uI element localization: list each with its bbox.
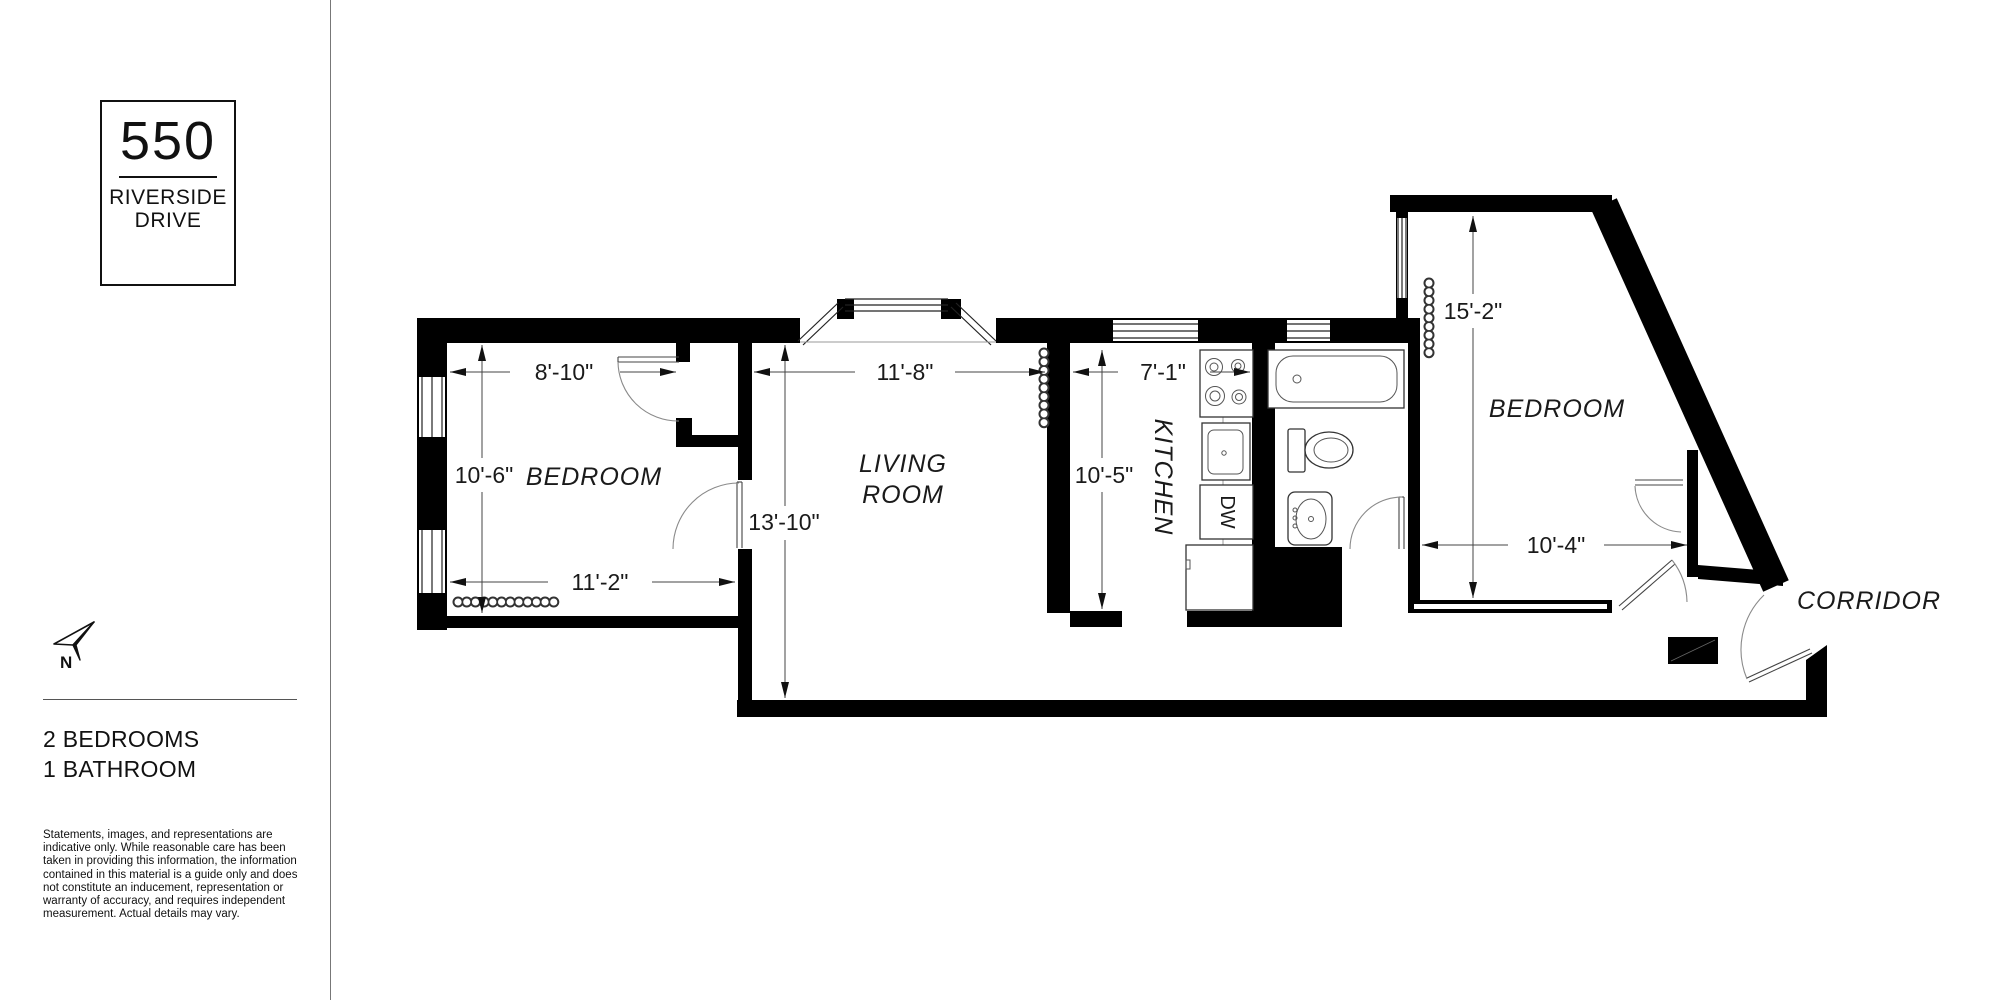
dimension-label: 11'-2" [572, 569, 629, 595]
kitchen-fixtures: DW [1186, 350, 1253, 610]
street-name-line2: DRIVE [102, 209, 234, 232]
dimension: 11'-2" [450, 569, 735, 595]
window [1397, 218, 1407, 298]
bay-window [798, 299, 996, 345]
bathroom-sink [1288, 492, 1332, 545]
bathroom-fixtures [1268, 350, 1404, 545]
dimension-label: 10'-5" [1075, 462, 1134, 488]
room-label-bedroom1: BEDROOM [526, 463, 662, 491]
stove [1200, 350, 1253, 417]
address-logo: 550 RIVERSIDE DRIVE [100, 100, 236, 286]
window [419, 377, 445, 437]
dishwasher-label: DW [1216, 495, 1238, 528]
floor-plan: DW [380, 130, 1960, 770]
dimension: 10'-5" [1075, 350, 1134, 609]
dimension-label: 10'-4" [1527, 532, 1586, 558]
dimension: 8'-10" [450, 359, 676, 385]
toilet [1288, 429, 1353, 472]
window [419, 530, 445, 593]
building-number: 550 [102, 112, 234, 170]
dimension: 10'-6" [455, 345, 514, 613]
dishwasher: DW [1200, 485, 1253, 539]
room-label-living-line1: LIVING [859, 450, 947, 478]
room-label-living-line2: ROOM [862, 481, 944, 509]
room-label-kitchen: KITCHEN [1149, 419, 1177, 536]
bathtub [1268, 350, 1404, 408]
dimension-label: 7'-1" [1140, 359, 1186, 385]
door-bedroom1 [673, 482, 742, 549]
dimension: 13'-10" [748, 345, 819, 698]
walls [417, 195, 1827, 717]
bathroom-count: 1 BATHROOM [43, 754, 199, 784]
window [1287, 320, 1330, 341]
panel-rule [43, 699, 297, 700]
bedroom-count: 2 BEDROOMS [43, 724, 199, 754]
dimension-label: 13'-10" [748, 509, 819, 535]
door-bathroom [1350, 497, 1404, 549]
dimension: 10'-4" [1422, 532, 1687, 558]
room-label-bedroom2: BEDROOM [1489, 395, 1625, 423]
panel-divider [330, 0, 331, 1000]
dimension: 11'-8" [754, 359, 1045, 385]
logo-rule [119, 176, 217, 178]
dimension-label: 15'-2" [1444, 298, 1503, 324]
north-label: N [60, 653, 72, 673]
dimension-label: 10'-6" [455, 462, 514, 488]
disclaimer-text: Statements, images, and representations … [43, 829, 313, 921]
unit-summary: 2 BEDROOMS 1 BATHROOM [43, 724, 199, 784]
window [1113, 320, 1198, 341]
room-label-corridor: CORRIDOR [1797, 587, 1941, 615]
door-bedroom2-closet [1635, 480, 1683, 532]
dimension-label: 8'-10" [535, 359, 594, 385]
dimension-label: 11'-8" [877, 359, 934, 385]
kitchen-sink [1202, 423, 1250, 480]
refrigerator [1186, 545, 1253, 610]
door-bedroom1-closet [618, 357, 679, 421]
page: 550 RIVERSIDE DRIVE N 2 BEDROOMS 1 BATHR… [0, 0, 2000, 1000]
street-name-line1: RIVERSIDE [102, 186, 234, 209]
north-arrow-icon [46, 614, 106, 680]
